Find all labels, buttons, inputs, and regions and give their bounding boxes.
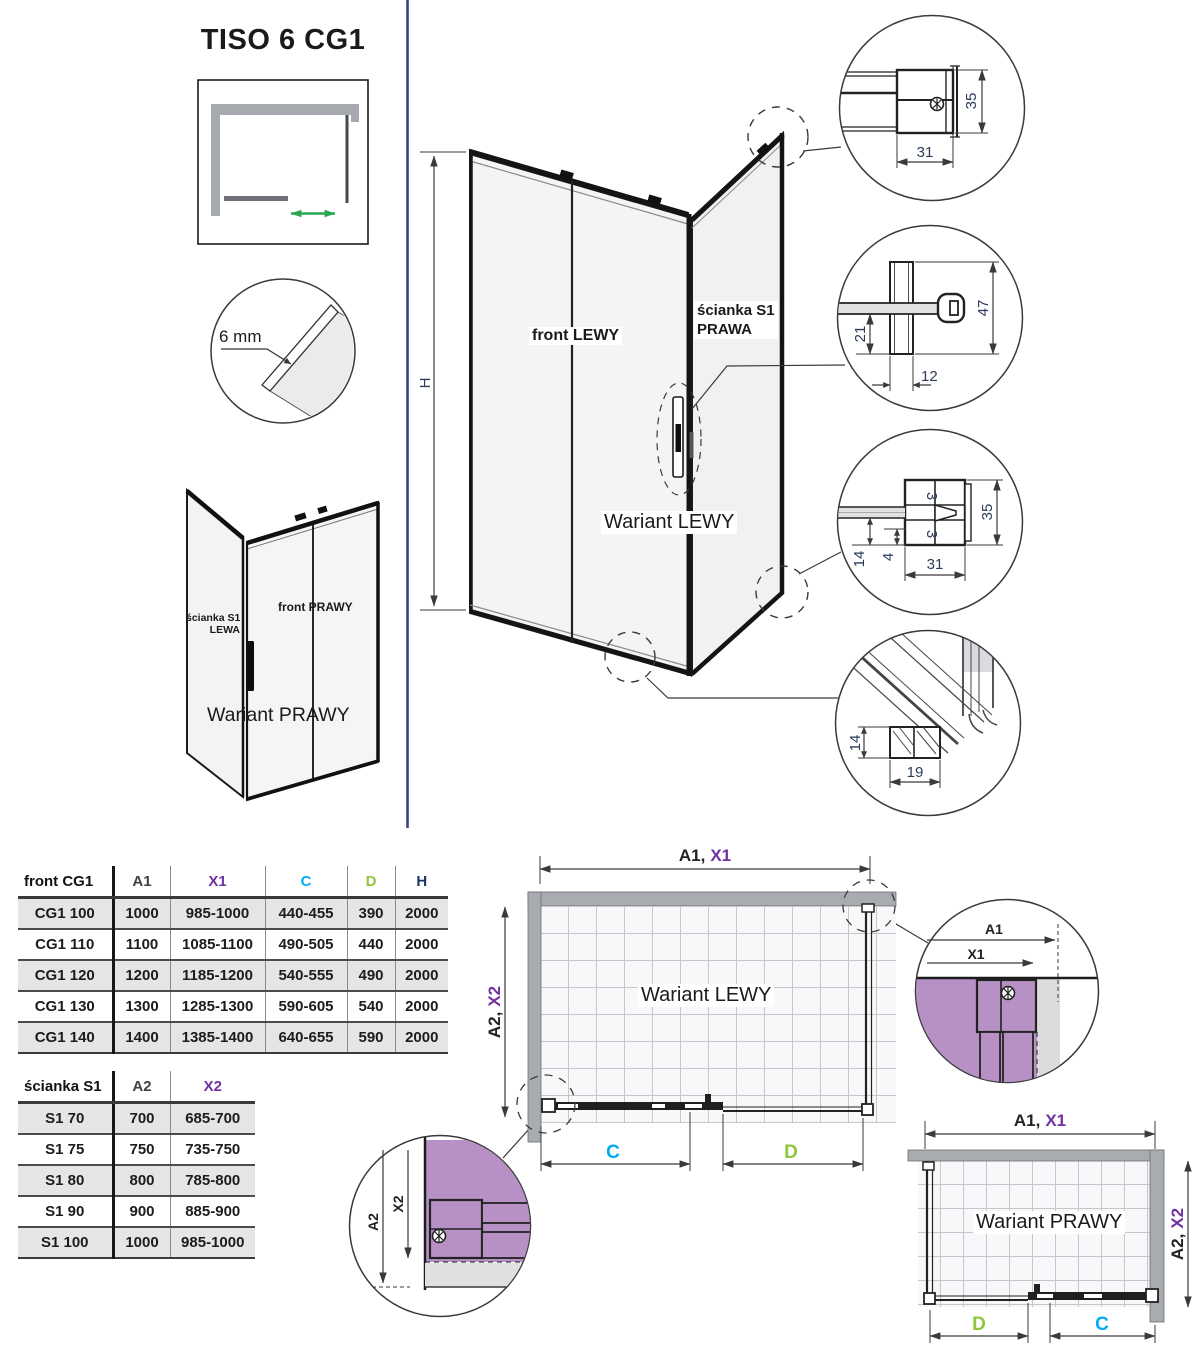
dim-a2x2: A2,X2 <box>485 986 504 1038</box>
table-cell: 2000 <box>395 960 448 991</box>
dim-4: 4 <box>880 553 897 561</box>
wall-top <box>528 892 896 906</box>
wall-label-line2: LEWA <box>186 624 240 636</box>
detail-bottom-profile: 3 3 35 31 14 4 <box>838 430 1023 615</box>
wall-top <box>908 1150 1164 1161</box>
iso-variant-right <box>187 490 378 800</box>
table: ścianka S1A2X2S1 70700685-700S1 75750735… <box>18 1071 255 1259</box>
dim-12: 12 <box>921 368 938 385</box>
table-cell: 885-900 <box>170 1196 255 1227</box>
table-row: CG1 13013001285-1300590-6055402000 <box>18 991 448 1022</box>
plan-left-caption: Wariant LEWY <box>638 984 774 1007</box>
table: front CG1A1X1CDHCG1 1001000985-1000440-4… <box>18 866 448 1054</box>
table-cell: S1 70 <box>18 1103 113 1135</box>
table-cell: 540 <box>347 991 395 1022</box>
table-cell: 685-700 <box>170 1103 255 1135</box>
iso-variant-left: H <box>417 107 808 682</box>
technical-sheet: H <box>0 0 1200 1357</box>
dim-21: 21 <box>852 326 869 343</box>
column-header: H <box>395 866 448 898</box>
glass-mark: 3 <box>923 492 940 500</box>
table-cell: 750 <box>113 1134 170 1165</box>
iso-main-front-label: front LEWY <box>529 327 622 345</box>
wall-label-line2: PRAWA <box>697 320 775 339</box>
glass-mark: 3 <box>923 530 940 538</box>
dim-14: 14 <box>847 735 864 752</box>
dim-a1x1: A1,X1 <box>679 846 731 865</box>
screw-icon <box>1002 987 1015 1000</box>
column-header: D <box>347 866 395 898</box>
table-cell: 1385-1400 <box>170 1022 265 1053</box>
wall-left <box>211 104 220 216</box>
door-handle <box>247 641 254 691</box>
column-header: A2 <box>113 1071 170 1103</box>
table-cell: CG1 130 <box>18 991 113 1022</box>
dim-31: 31 <box>917 144 934 161</box>
table-cell: 640-655 <box>265 1022 347 1053</box>
table-cell: 1000 <box>113 1227 170 1258</box>
table-cell: S1 75 <box>18 1134 113 1165</box>
wall-label-line1: ścianka S1 <box>186 612 240 624</box>
corner-detail-a1x1: A1 X1 <box>910 900 1100 1093</box>
table-cell: 1085-1100 <box>170 929 265 960</box>
table-cell: 1100 <box>113 929 170 960</box>
spec-table-wall: ścianka S1A2X2S1 70700685-700S1 75750735… <box>18 1071 255 1259</box>
table-row: S1 75750735-750 <box>18 1134 255 1165</box>
table-cell: CG1 100 <box>18 898 113 930</box>
table-cell: 735-750 <box>170 1134 255 1165</box>
table-cell: 900 <box>113 1196 170 1227</box>
table-cell: 440-455 <box>265 898 347 930</box>
table-cell: S1 90 <box>18 1196 113 1227</box>
column-header: C <box>265 866 347 898</box>
dim-a1: A1 <box>985 921 1003 937</box>
height-dimension: H <box>417 152 466 610</box>
table-cell: 1185-1200 <box>170 960 265 991</box>
front-panel <box>470 150 690 675</box>
table-row: S1 80800785-800 <box>18 1165 255 1196</box>
top-view-schematic <box>198 80 368 244</box>
iso-small-wall-label: ścianka S1 LEWA <box>186 612 240 636</box>
table-cell: 985-1000 <box>170 1227 255 1258</box>
wall-left <box>528 892 541 1142</box>
dim-c: C <box>1095 1314 1109 1335</box>
table-cell: 785-800 <box>170 1165 255 1196</box>
dim-c: C <box>606 1142 620 1163</box>
dim-d: D <box>972 1314 986 1335</box>
fixed-panel-line <box>346 115 349 203</box>
table-cell: 440 <box>347 929 395 960</box>
table-cell: 540-555 <box>265 960 347 991</box>
dim-x2: X2 <box>390 1195 406 1212</box>
tiled-floor <box>541 907 896 1123</box>
table-cell: 1000 <box>113 898 170 930</box>
table-cell: S1 100 <box>18 1227 113 1258</box>
dim-H: H <box>417 378 434 389</box>
dim-a2x2: A2,X2 <box>1168 1208 1187 1260</box>
page-title: TISO 6 CG1 <box>188 24 378 57</box>
table-cell: 2000 <box>395 898 448 930</box>
table-row: S1 70700685-700 <box>18 1103 255 1135</box>
table-row: CG1 12012001185-1200540-5554902000 <box>18 960 448 991</box>
iso-small-caption: Wariant PRAWY <box>207 704 350 727</box>
table-cell: 985-1000 <box>170 898 265 930</box>
dim-x1: X1 <box>967 946 984 962</box>
screw-icon <box>433 1230 446 1243</box>
table-cell: 590-605 <box>265 991 347 1022</box>
wall-top <box>211 104 359 115</box>
detail-rail-profile: 14 19 <box>836 614 1021 816</box>
corner-detail-a2x2: A2 X2 <box>350 1136 538 1317</box>
wall-label-line1: ścianka S1 <box>697 301 775 320</box>
table-cell: 490-505 <box>265 929 347 960</box>
dim-14: 14 <box>851 551 868 568</box>
column-header: X2 <box>170 1071 255 1103</box>
detail-wall-profile: 47 21 12 <box>838 226 1023 411</box>
column-header: A1 <box>113 866 170 898</box>
side-wall-panel <box>692 133 783 675</box>
glass-thickness-detail <box>211 279 396 427</box>
table-cell: S1 80 <box>18 1165 113 1196</box>
plan-right-caption: Wariant PRAWY <box>973 1211 1125 1234</box>
spec-table-front: front CG1A1X1CDHCG1 1001000985-1000440-4… <box>18 866 448 1054</box>
side-wall-panel <box>187 490 243 797</box>
table-cell: 1400 <box>113 1022 170 1053</box>
table-cell: 390 <box>347 898 395 930</box>
table-cell: CG1 140 <box>18 1022 113 1053</box>
dim-31: 31 <box>927 556 944 573</box>
table-cell: 1300 <box>113 991 170 1022</box>
sliding-door-line <box>224 196 288 201</box>
iso-small-front-label: front PRAWY <box>278 600 353 614</box>
dim-35: 35 <box>963 93 980 110</box>
dim-d: D <box>784 1142 798 1163</box>
table-row: S1 1001000985-1000 <box>18 1227 255 1258</box>
table-cell: 1200 <box>113 960 170 991</box>
table-cell: 1285-1300 <box>170 991 265 1022</box>
dim-35: 35 <box>979 504 996 521</box>
column-header: ścianka S1 <box>18 1071 113 1103</box>
detail-top-profile: 35 31 <box>840 16 1025 201</box>
table-cell: CG1 120 <box>18 960 113 991</box>
table-cell: CG1 110 <box>18 929 113 960</box>
table-row: CG1 11011001085-1100490-5054402000 <box>18 929 448 960</box>
table-cell: 800 <box>113 1165 170 1196</box>
table-row: S1 90900885-900 <box>18 1196 255 1227</box>
dim-47: 47 <box>975 300 992 317</box>
iso-main-caption: Wariant LEWY <box>601 511 737 534</box>
table-row: CG1 14014001385-1400640-6555902000 <box>18 1022 448 1053</box>
table-cell: 490 <box>347 960 395 991</box>
table-cell: 2000 <box>395 1022 448 1053</box>
table-cell: 700 <box>113 1103 170 1135</box>
dim-19: 19 <box>907 764 924 781</box>
column-header: X1 <box>170 866 265 898</box>
table-cell: 2000 <box>395 929 448 960</box>
glass-thickness-label: 6 mm <box>219 327 262 347</box>
iso-main-wall-label: ścianka S1 PRAWA <box>694 301 778 339</box>
table-cell: 2000 <box>395 991 448 1022</box>
screw-icon <box>931 98 944 111</box>
plan-variant-left: A1,X1 A2,X2 C D <box>485 846 896 1171</box>
column-header: front CG1 <box>18 866 113 898</box>
table-row: CG1 1001000985-1000440-4553902000 <box>18 898 448 930</box>
table-cell: 590 <box>347 1022 395 1053</box>
dim-a2: A2 <box>365 1213 381 1231</box>
dim-a1x1: A1,X1 <box>1014 1111 1066 1130</box>
